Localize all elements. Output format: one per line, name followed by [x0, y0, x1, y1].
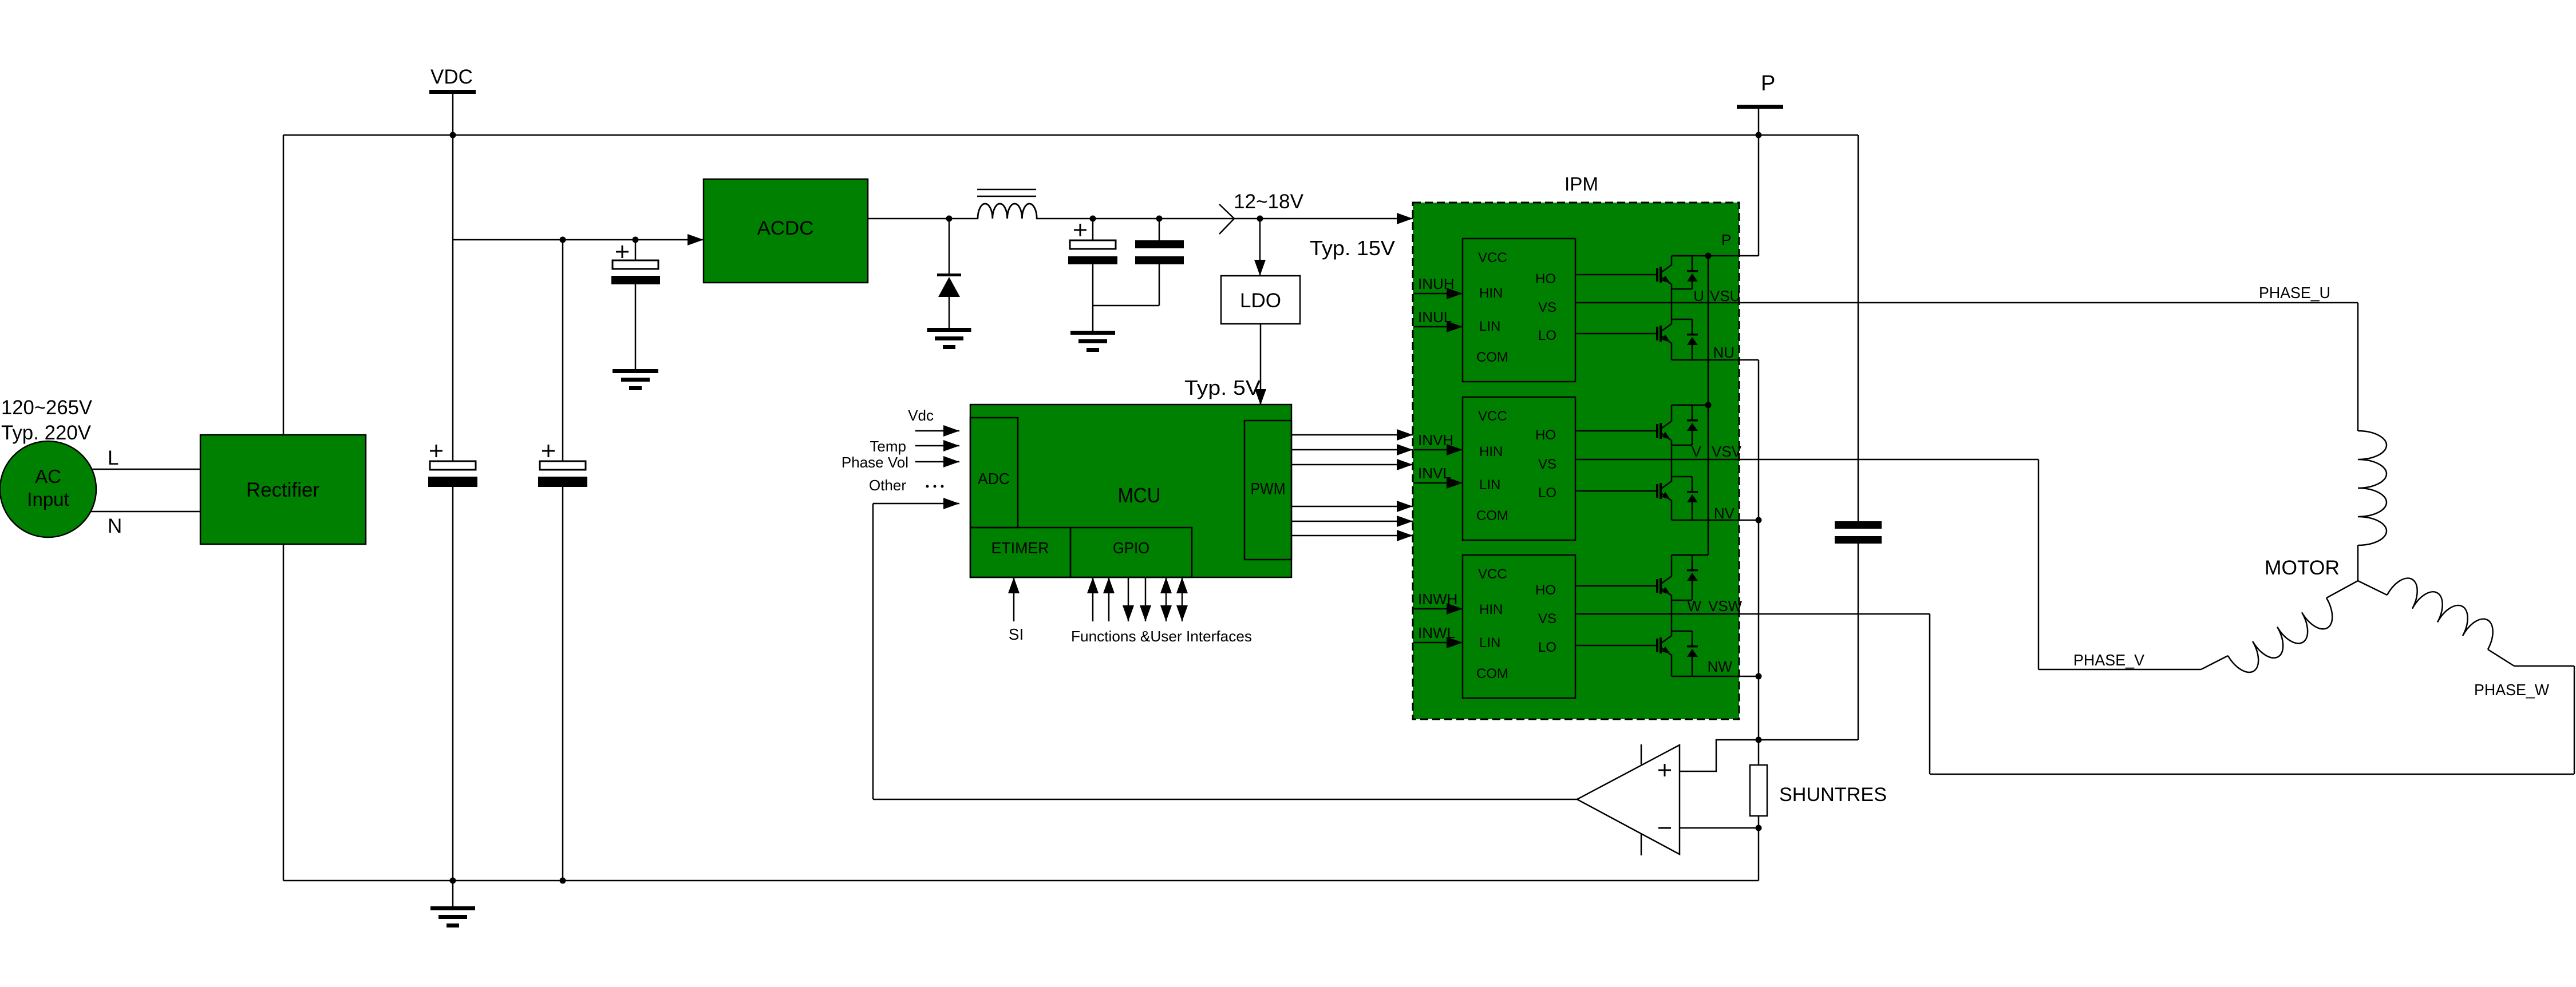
- svg-text:Typ. 5V: Typ. 5V: [1184, 376, 1261, 399]
- svg-text:HO: HO: [1535, 427, 1556, 443]
- svg-text:Typ. 220V: Typ. 220V: [1, 422, 92, 444]
- svg-text:W: W: [1687, 597, 1701, 615]
- svg-text:INUL: INUL: [1418, 308, 1452, 326]
- svg-text:HIN: HIN: [1479, 444, 1503, 459]
- svg-text:HIN: HIN: [1479, 286, 1503, 301]
- svg-text:MCU: MCU: [1118, 483, 1161, 507]
- svg-text:AC: AC: [35, 466, 61, 487]
- svg-text:PHASE_V: PHASE_V: [2073, 651, 2144, 669]
- svg-text:COM: COM: [1476, 666, 1508, 681]
- svg-text:LIN: LIN: [1479, 319, 1500, 334]
- svg-text:PHASE_U: PHASE_U: [2259, 284, 2330, 302]
- svg-text:Typ. 15V: Typ. 15V: [1310, 236, 1395, 260]
- svg-text:INWH: INWH: [1418, 590, 1457, 608]
- svg-text:120~265V: 120~265V: [1, 397, 93, 419]
- svg-text:NW: NW: [1708, 658, 1733, 675]
- svg-text:Other: Other: [869, 477, 906, 494]
- svg-text:IPM: IPM: [1564, 173, 1598, 195]
- svg-text:N: N: [108, 515, 122, 537]
- svg-text:HIN: HIN: [1479, 602, 1503, 617]
- svg-text:VS: VS: [1538, 611, 1556, 627]
- svg-text:INVH: INVH: [1418, 431, 1453, 449]
- svg-text:ETIMER: ETIMER: [991, 539, 1049, 557]
- svg-text:PWM: PWM: [1251, 480, 1286, 498]
- svg-text:Vdc: Vdc: [908, 407, 934, 424]
- svg-text:NV: NV: [1714, 505, 1735, 522]
- svg-text:Phase Vol: Phase Vol: [841, 454, 908, 471]
- svg-text:V: V: [1692, 443, 1702, 460]
- svg-text:LO: LO: [1538, 640, 1556, 655]
- svg-text:VS: VS: [1538, 300, 1556, 315]
- svg-text:HO: HO: [1535, 582, 1556, 598]
- svg-text:Temp: Temp: [870, 438, 906, 455]
- svg-text:VCC: VCC: [1478, 250, 1507, 265]
- svg-text:SHUNTRES: SHUNTRES: [1779, 784, 1887, 806]
- svg-text:VSU: VSU: [1710, 287, 1740, 304]
- svg-text:INVL: INVL: [1418, 465, 1451, 482]
- svg-text:VS: VS: [1538, 457, 1556, 472]
- svg-text:COM: COM: [1476, 350, 1508, 365]
- svg-text:LDO: LDO: [1240, 290, 1281, 312]
- svg-text:VCC: VCC: [1478, 409, 1507, 424]
- svg-text:GPIO: GPIO: [1113, 539, 1149, 557]
- svg-text:PHASE_W: PHASE_W: [2474, 681, 2550, 699]
- svg-text:MOTOR: MOTOR: [2265, 557, 2340, 579]
- svg-text:Rectifier: Rectifier: [246, 479, 319, 501]
- svg-text:L: L: [108, 447, 118, 469]
- svg-text:INUH: INUH: [1418, 275, 1455, 292]
- svg-text:NU: NU: [1713, 344, 1735, 361]
- svg-text:U: U: [1693, 287, 1704, 304]
- svg-text:LIN: LIN: [1479, 477, 1500, 493]
- svg-text:P: P: [1761, 72, 1775, 96]
- svg-text:VSV: VSV: [1712, 443, 1742, 460]
- svg-text:ADC: ADC: [978, 470, 1010, 487]
- svg-text:VDC: VDC: [430, 66, 473, 88]
- svg-text:12~18V: 12~18V: [1234, 191, 1304, 213]
- svg-text:VCC: VCC: [1478, 566, 1507, 582]
- svg-text:LO: LO: [1538, 485, 1556, 501]
- svg-text:VSW: VSW: [1708, 597, 1743, 615]
- svg-text:INWL: INWL: [1418, 624, 1455, 641]
- svg-text:HO: HO: [1535, 271, 1556, 287]
- svg-text:SI: SI: [1009, 625, 1024, 643]
- svg-text:Functions &User Interfaces: Functions &User Interfaces: [1071, 628, 1252, 645]
- svg-text:COM: COM: [1476, 508, 1508, 524]
- svg-text:ACDC: ACDC: [757, 217, 814, 239]
- svg-text:Input: Input: [27, 489, 69, 510]
- svg-text:LIN: LIN: [1479, 635, 1500, 651]
- svg-text:LO: LO: [1538, 328, 1556, 343]
- svg-text:P: P: [1721, 231, 1731, 248]
